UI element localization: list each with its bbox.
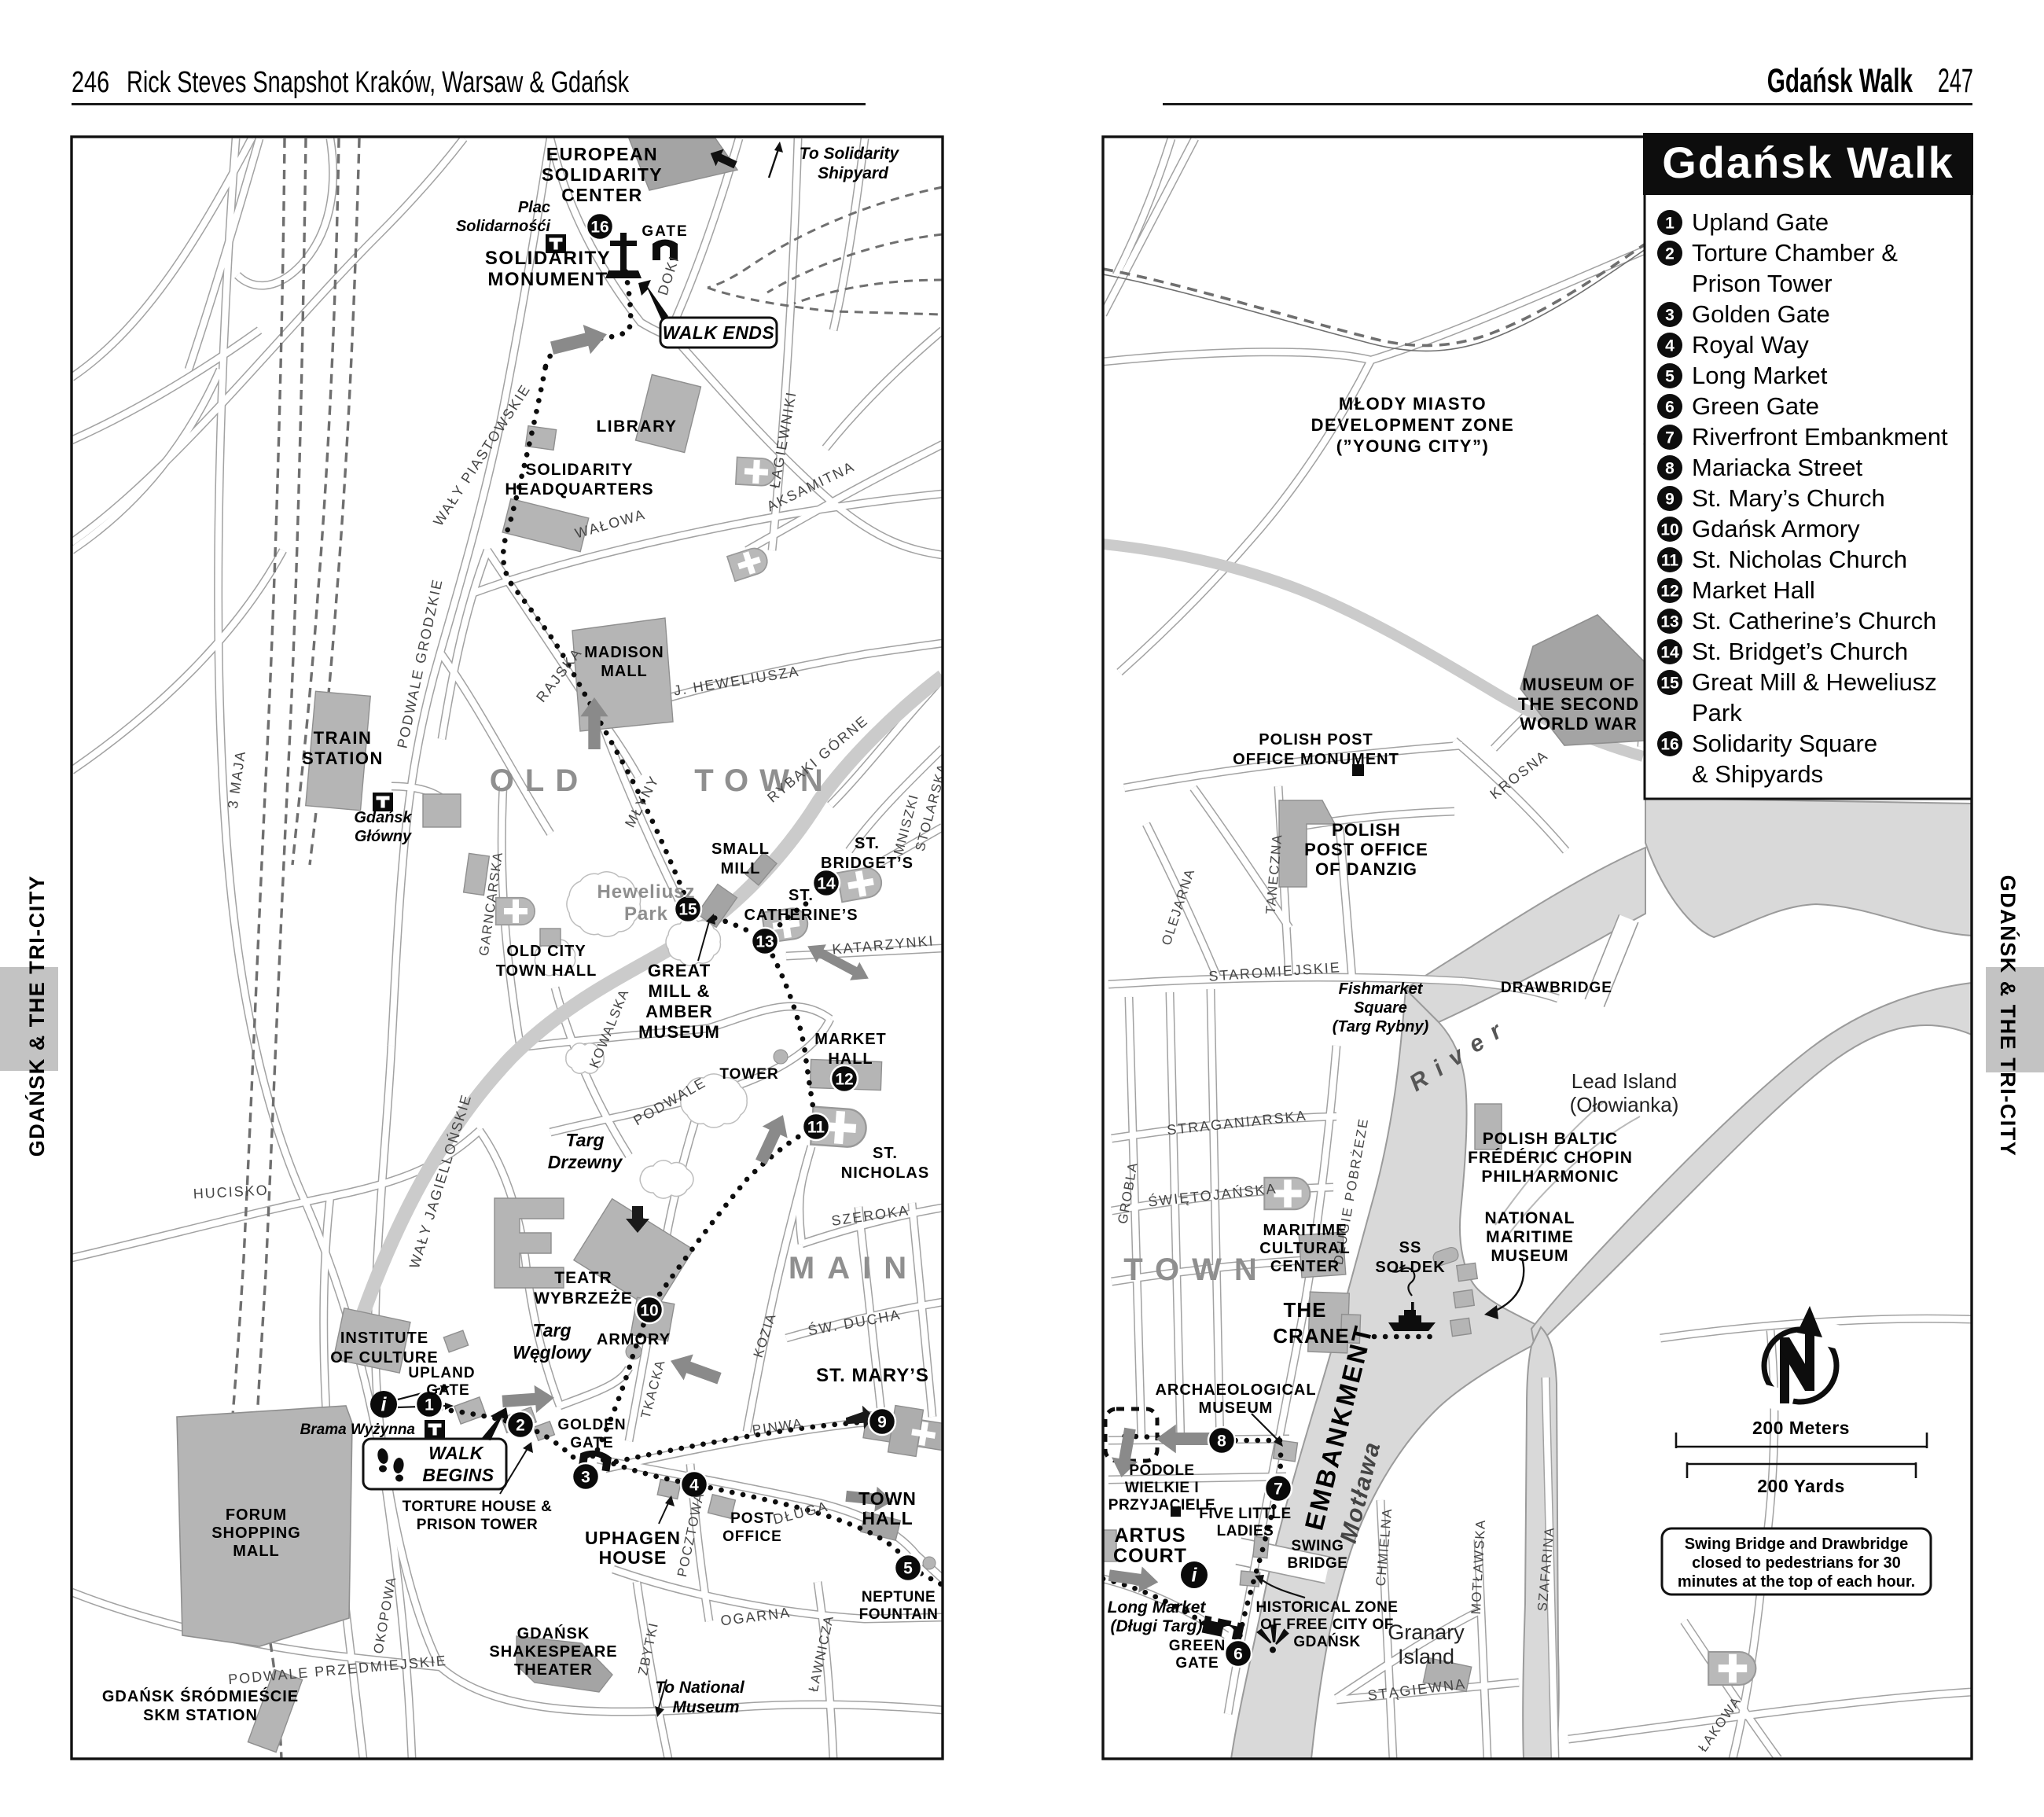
svg-text:200 Yards: 200 Yards	[1757, 1476, 1845, 1496]
svg-text:EUROPEAN: EUROPEAN	[546, 144, 658, 164]
svg-text:(Ołowianka): (Ołowianka)	[1570, 1093, 1679, 1116]
svg-text:Swing Bridge and Drawbridge: Swing Bridge and Drawbridge	[1685, 1536, 1908, 1553]
svg-text:HISTORICAL ZONE: HISTORICAL ZONE	[1256, 1599, 1399, 1616]
svg-text:POST: POST	[730, 1510, 774, 1527]
svg-text:POST OFFICE: POST OFFICE	[1304, 840, 1428, 859]
svg-text:To National: To National	[655, 1679, 745, 1697]
svg-text:HEADQUARTERS: HEADQUARTERS	[505, 480, 653, 498]
svg-text:TOWN: TOWN	[858, 1488, 917, 1509]
svg-text:PRISON TOWER: PRISON TOWER	[417, 1517, 539, 1533]
svg-text:SKM STATION: SKM STATION	[143, 1707, 258, 1724]
svg-text:16: 16	[590, 219, 608, 237]
svg-text:Mariacka Street: Mariacka Street	[1692, 454, 1862, 481]
svg-text:Park: Park	[1692, 699, 1742, 726]
svg-text:AMBER: AMBER	[645, 1002, 713, 1021]
svg-text:INSTITUTE: INSTITUTE	[340, 1330, 428, 1347]
svg-text:11: 11	[1661, 552, 1679, 570]
svg-text:minutes at the top of each hou: minutes at the top of each hour.	[1678, 1573, 1915, 1591]
svg-text:MALL: MALL	[233, 1543, 280, 1560]
svg-text:HALL: HALL	[862, 1508, 913, 1528]
svg-text:CULTURAL: CULTURAL	[1259, 1240, 1350, 1257]
svg-text:Shipyard: Shipyard	[818, 164, 889, 182]
svg-text:15: 15	[1660, 675, 1679, 693]
svg-text:Riverfront Embankment: Riverfront Embankment	[1692, 423, 1948, 451]
svg-text:10: 10	[640, 1302, 658, 1320]
svg-text:Green Gate: Green Gate	[1692, 392, 1819, 420]
svg-text:SOLIDARITY: SOLIDARITY	[542, 164, 663, 185]
svg-text:closed to pedestrians for 30: closed to pedestrians for 30	[1692, 1554, 1901, 1572]
svg-text:WALK ENDS: WALK ENDS	[663, 322, 775, 343]
svg-text:14: 14	[1660, 644, 1679, 662]
svg-text:COURT: COURT	[1113, 1545, 1187, 1567]
svg-text:FIVE LITTLE: FIVE LITTLE	[1199, 1506, 1291, 1522]
svg-text:Upland Gate: Upland Gate	[1692, 208, 1829, 236]
svg-text:3: 3	[581, 1469, 590, 1487]
svg-text:ARTUS: ARTUS	[1114, 1525, 1186, 1547]
svg-text:1: 1	[1665, 215, 1675, 233]
svg-text:NEPTUNE: NEPTUNE	[862, 1589, 936, 1606]
svg-text:POLISH POST: POLISH POST	[1259, 731, 1373, 749]
svg-text:GDAŃSK & THE TRI-CITY: GDAŃSK & THE TRI-CITY	[1996, 875, 2020, 1157]
svg-text:MARITIME: MARITIME	[1486, 1228, 1574, 1246]
svg-text:UPLAND: UPLAND	[408, 1365, 475, 1381]
svg-text:Rick Steves Snapshot Kraków, W: Rick Steves Snapshot Kraków, Warsaw & Gd…	[127, 65, 629, 99]
svg-text:LIBRARY: LIBRARY	[596, 417, 677, 436]
svg-text:GDAŃSK ŚRÓDMIEŚCIE: GDAŃSK ŚRÓDMIEŚCIE	[102, 1686, 299, 1705]
svg-text:SMALL: SMALL	[711, 840, 770, 858]
svg-text:WIELKIE I: WIELKIE I	[1125, 1480, 1199, 1496]
svg-text:FRÉDÉRIC CHOPIN: FRÉDÉRIC CHOPIN	[1468, 1149, 1633, 1167]
svg-text:Torture Chamber &: Torture Chamber &	[1692, 239, 1898, 267]
svg-text:MŁODY MIASTO: MŁODY MIASTO	[1339, 394, 1487, 414]
svg-text:Gdańsk Walk: Gdańsk Walk	[1662, 138, 1954, 187]
svg-text:Brama Wyżynna: Brama Wyżynna	[300, 1422, 416, 1438]
svg-text:247: 247	[1938, 61, 1973, 100]
svg-text:SOŁDEK: SOŁDEK	[1375, 1259, 1445, 1276]
svg-text:(Targ Rybny): (Targ Rybny)	[1333, 1018, 1429, 1035]
svg-text:Island: Island	[1398, 1645, 1454, 1668]
svg-text:3: 3	[1665, 307, 1675, 325]
svg-text:Główny: Główny	[355, 828, 412, 845]
svg-text:Great Mill & Heweliusz: Great Mill & Heweliusz	[1692, 668, 1937, 696]
svg-text:12: 12	[1660, 583, 1678, 601]
svg-text:9: 9	[877, 1414, 887, 1432]
svg-text:PHILHARMONIC: PHILHARMONIC	[1481, 1168, 1619, 1186]
svg-text:MUSEUM: MUSEUM	[638, 1022, 720, 1042]
svg-text:8: 8	[1665, 460, 1675, 478]
svg-text:TOWN HALL: TOWN HALL	[496, 962, 597, 980]
svg-text:UPHAGEN: UPHAGEN	[585, 1528, 681, 1548]
svg-text:St. Nicholas Church: St. Nicholas Church	[1692, 546, 1907, 573]
svg-text:WALK: WALK	[428, 1443, 484, 1463]
svg-text:12: 12	[835, 1071, 853, 1089]
svg-text:Solidarity Square: Solidarity Square	[1692, 730, 1877, 757]
svg-text:Square: Square	[1354, 999, 1407, 1017]
svg-text:10: 10	[1660, 521, 1678, 539]
svg-text:8: 8	[1217, 1433, 1226, 1451]
svg-text:2: 2	[516, 1417, 525, 1435]
svg-text:GDAŃSK: GDAŃSK	[517, 1624, 590, 1642]
svg-text:MAIN: MAIN	[789, 1251, 919, 1286]
svg-text:Gdańsk: Gdańsk	[354, 809, 412, 826]
svg-text:ST.: ST.	[855, 835, 880, 852]
svg-text:11: 11	[807, 1119, 825, 1137]
svg-text:TRAIN: TRAIN	[314, 728, 373, 748]
svg-text:ST.: ST.	[789, 887, 814, 904]
svg-text:SHAKESPEARE: SHAKESPEARE	[489, 1643, 617, 1661]
svg-text:Plac: Plac	[518, 199, 550, 216]
svg-text:OF DANZIG: OF DANZIG	[1315, 859, 1417, 879]
svg-text:SS: SS	[1399, 1239, 1422, 1256]
svg-text:(”YOUNG CITY”): (”YOUNG CITY”)	[1336, 436, 1490, 456]
svg-text:MUSEUM OF: MUSEUM OF	[1522, 675, 1634, 694]
svg-text:Fishmarket: Fishmarket	[1339, 980, 1424, 998]
svg-text:5: 5	[1665, 368, 1675, 386]
svg-text:BRIDGE: BRIDGE	[1288, 1555, 1348, 1572]
svg-text:& Shipyards: & Shipyards	[1692, 760, 1823, 788]
svg-text:246: 246	[72, 65, 109, 99]
svg-text:MUSEUM: MUSEUM	[1199, 1400, 1274, 1417]
svg-text:OLD CITY: OLD CITY	[506, 943, 586, 960]
svg-text:DEVELOPMENT ZONE: DEVELOPMENT ZONE	[1311, 415, 1515, 435]
svg-text:MILL: MILL	[721, 860, 761, 877]
svg-text:DRAWBRIDGE: DRAWBRIDGE	[1501, 980, 1612, 996]
svg-text:TEATR: TEATR	[554, 1269, 612, 1287]
svg-text:MUSEUM: MUSEUM	[1491, 1247, 1568, 1265]
svg-text:SOLIDARITY: SOLIDARITY	[525, 461, 633, 479]
svg-text:GREAT: GREAT	[648, 961, 711, 980]
svg-text:Long Market: Long Market	[1108, 1598, 1207, 1617]
svg-text:GREEN: GREEN	[1169, 1638, 1226, 1654]
svg-text:St. Catherine’s Church: St. Catherine’s Church	[1692, 607, 1936, 634]
svg-text:St. Mary’s Church: St. Mary’s Church	[1692, 484, 1885, 512]
svg-text:Market Hall: Market Hall	[1692, 576, 1815, 604]
svg-text:Museum: Museum	[672, 1698, 739, 1716]
svg-text:Solidarnośći: Solidarnośći	[456, 218, 550, 235]
svg-text:SHOPPING: SHOPPING	[211, 1525, 301, 1542]
svg-text:Targ: Targ	[566, 1130, 605, 1150]
svg-text:MARKET: MARKET	[814, 1031, 887, 1048]
svg-text:9: 9	[1665, 491, 1675, 509]
svg-text:6: 6	[1665, 399, 1675, 417]
svg-text:BEGINS: BEGINS	[422, 1465, 494, 1485]
svg-text:6: 6	[1233, 1646, 1243, 1664]
svg-text:MONUMENT: MONUMENT	[487, 269, 608, 290]
svg-text:Lead Island: Lead Island	[1572, 1069, 1677, 1093]
svg-text:CENTER: CENTER	[1270, 1258, 1340, 1275]
svg-text:ARMORY: ARMORY	[597, 1331, 671, 1348]
svg-text:MILL &: MILL &	[649, 981, 711, 1001]
svg-text:Targ: Targ	[533, 1320, 572, 1341]
svg-text:Gdańsk Walk: Gdańsk Walk	[1767, 62, 1913, 100]
svg-text:TOWN: TOWN	[1123, 1252, 1269, 1287]
svg-text:200 Meters: 200 Meters	[1752, 1418, 1850, 1438]
svg-text:GATE: GATE	[642, 223, 688, 240]
svg-text:OFFICE MONUMENT: OFFICE MONUMENT	[1233, 751, 1399, 768]
svg-text:GOLDEN: GOLDEN	[557, 1417, 626, 1433]
svg-text:CATHERINE’S: CATHERINE’S	[744, 907, 858, 924]
svg-text:Prison Tower: Prison Tower	[1692, 270, 1833, 297]
svg-text:(Długi Targ): (Długi Targ)	[1110, 1617, 1202, 1635]
svg-text:Granary: Granary	[1388, 1620, 1465, 1644]
svg-text:GATE: GATE	[426, 1382, 469, 1399]
svg-text:Gdańsk Armory: Gdańsk Armory	[1692, 515, 1860, 543]
svg-text:15: 15	[678, 901, 697, 919]
svg-text:2: 2	[1665, 245, 1675, 263]
svg-text:4: 4	[1665, 337, 1675, 355]
svg-text:5: 5	[903, 1560, 913, 1578]
svg-text:Drzewny: Drzewny	[548, 1152, 623, 1172]
svg-text:GDAŃSK & THE TRI-CITY: GDAŃSK & THE TRI-CITY	[24, 875, 49, 1157]
svg-text:BRIDGET’S: BRIDGET’S	[821, 855, 914, 872]
svg-text:LADIES: LADIES	[1217, 1523, 1274, 1539]
svg-text:THE SECOND: THE SECOND	[1518, 694, 1639, 714]
svg-text:MADISON: MADISON	[584, 644, 664, 661]
svg-text:St. Bridget’s Church: St. Bridget’s Church	[1692, 638, 1908, 665]
svg-text:THEATER: THEATER	[514, 1661, 593, 1679]
svg-text:WORLD WAR: WORLD WAR	[1520, 714, 1638, 734]
svg-text:Węglowy: Węglowy	[513, 1342, 592, 1363]
svg-text:To Solidarity: To Solidarity	[800, 145, 900, 163]
svg-text:OLD: OLD	[490, 763, 589, 798]
svg-text:13: 13	[1660, 613, 1678, 631]
svg-text:POLISH: POLISH	[1332, 820, 1401, 840]
svg-text:GATE: GATE	[570, 1435, 613, 1451]
svg-text:MALL: MALL	[601, 663, 648, 680]
svg-text:NICHOLAS: NICHOLAS	[841, 1164, 929, 1182]
svg-text:13: 13	[755, 933, 774, 951]
svg-text:7: 7	[1665, 429, 1675, 447]
svg-text:SWING: SWING	[1292, 1538, 1344, 1554]
svg-text:ST.: ST.	[873, 1145, 898, 1162]
svg-text:OF FREE CITY OF: OF FREE CITY OF	[1260, 1617, 1394, 1633]
svg-text:HOUSE: HOUSE	[599, 1547, 667, 1568]
svg-text:16: 16	[1660, 736, 1678, 754]
svg-text:7: 7	[1274, 1480, 1283, 1499]
svg-text:Golden Gate: Golden Gate	[1692, 300, 1830, 328]
svg-text:Long Market: Long Market	[1692, 362, 1828, 389]
svg-text:GATE: GATE	[1175, 1655, 1219, 1672]
svg-text:1: 1	[425, 1396, 434, 1414]
svg-text:ST. MARY’S: ST. MARY’S	[816, 1365, 929, 1386]
svg-text:MARITIME: MARITIME	[1263, 1222, 1347, 1239]
svg-text:NATIONAL: NATIONAL	[1485, 1209, 1575, 1227]
svg-text:ARCHAEOLOGICAL: ARCHAEOLOGICAL	[1155, 1381, 1316, 1399]
svg-text:THE: THE	[1284, 1298, 1327, 1322]
svg-text:WYBRZEŻE: WYBRZEŻE	[534, 1289, 633, 1308]
svg-text:STATION: STATION	[302, 749, 384, 768]
svg-text:POLISH BALTIC: POLISH BALTIC	[1483, 1130, 1618, 1148]
svg-text:Royal Way: Royal Way	[1692, 331, 1809, 359]
svg-text:OFFICE: OFFICE	[722, 1528, 782, 1545]
svg-text:SOLIDARITY: SOLIDARITY	[485, 248, 611, 269]
svg-text:14: 14	[817, 875, 836, 893]
svg-text:TOWER: TOWER	[719, 1066, 778, 1083]
svg-text:OF CULTURE: OF CULTURE	[330, 1349, 438, 1366]
svg-text:FOUNTAIN: FOUNTAIN	[859, 1606, 939, 1623]
svg-text:HALL: HALL	[828, 1050, 873, 1068]
svg-text:CENTER: CENTER	[561, 185, 643, 205]
svg-text:Park: Park	[624, 903, 668, 925]
svg-text:PODOLE: PODOLE	[1129, 1462, 1194, 1479]
svg-text:CRANE: CRANE	[1273, 1324, 1349, 1348]
svg-text:Heweliusz: Heweliusz	[597, 881, 695, 903]
svg-text:TORTURE HOUSE &: TORTURE HOUSE &	[403, 1499, 553, 1515]
svg-text:FORUM: FORUM	[226, 1506, 287, 1524]
svg-text:GDAŃSK: GDAŃSK	[1293, 1633, 1360, 1650]
